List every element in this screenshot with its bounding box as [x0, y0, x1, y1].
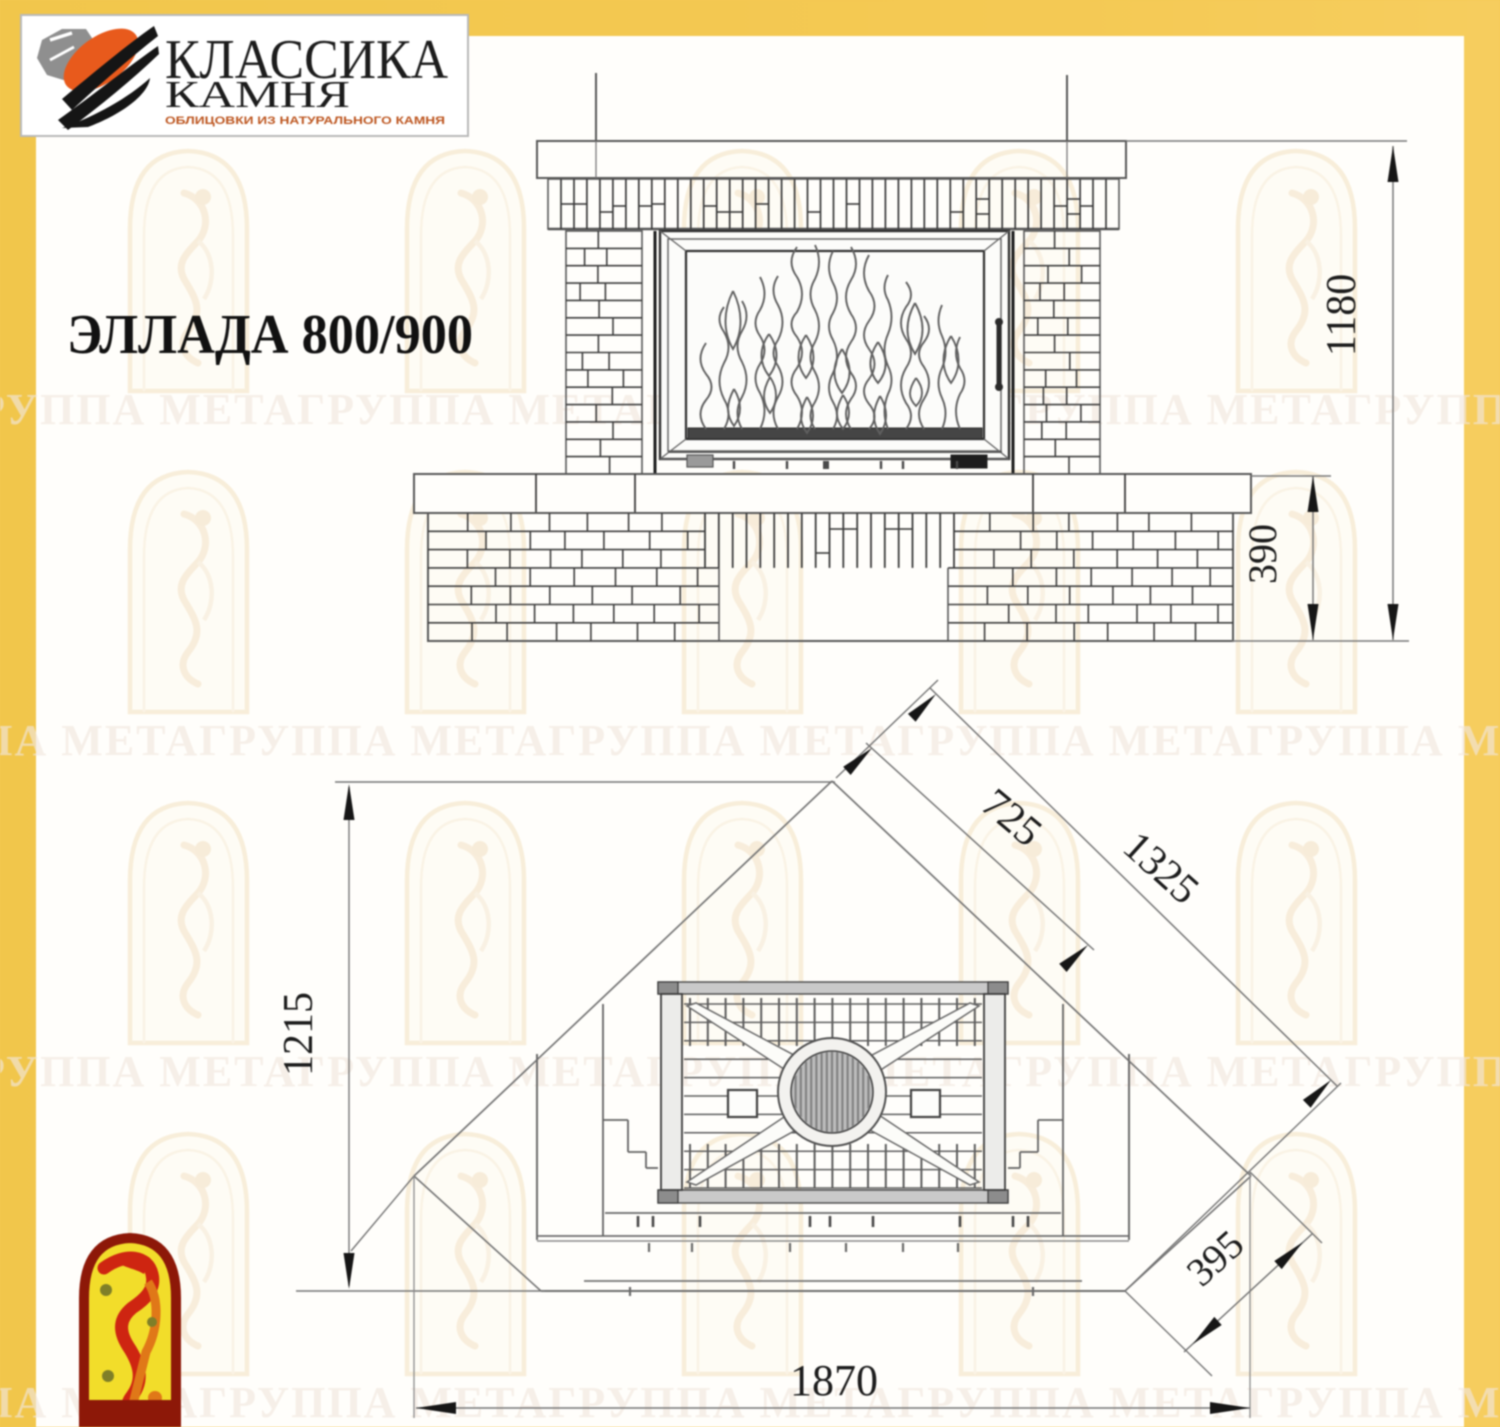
svg-text:КАМНЯ: КАМНЯ: [165, 74, 350, 116]
svg-text:ЭЛЛАДА 800/900: ЭЛЛАДА 800/900: [67, 304, 473, 366]
svg-text:1180: 1180: [1319, 274, 1365, 356]
svg-text:1215: 1215: [276, 992, 322, 1076]
svg-text:ГРУППА МЕТАГРУППА МЕТАГРУППА М: ГРУППА МЕТАГРУППА МЕТАГРУППА МЕТАГРУППА …: [0, 716, 1500, 765]
svg-text:ГРУППА МЕТАГРУППА МЕТАГРУППА М: ГРУППА МЕТАГРУППА МЕТАГРУППА МЕТАГРУППА …: [0, 1047, 1500, 1096]
svg-text:ОБЛИЦОВКИ ИЗ НАТУРАЛЬНОГО КАМН: ОБЛИЦОВКИ ИЗ НАТУРАЛЬНОГО КАМНЯ: [165, 115, 445, 127]
svg-text:390: 390: [1240, 524, 1285, 584]
svg-text:ГРУППА МЕТАГРУППА МЕТАГРУППА М: ГРУППА МЕТАГРУППА МЕТАГРУППА МЕТАГРУППА …: [0, 1378, 1500, 1427]
svg-text:1870: 1870: [790, 1356, 878, 1405]
